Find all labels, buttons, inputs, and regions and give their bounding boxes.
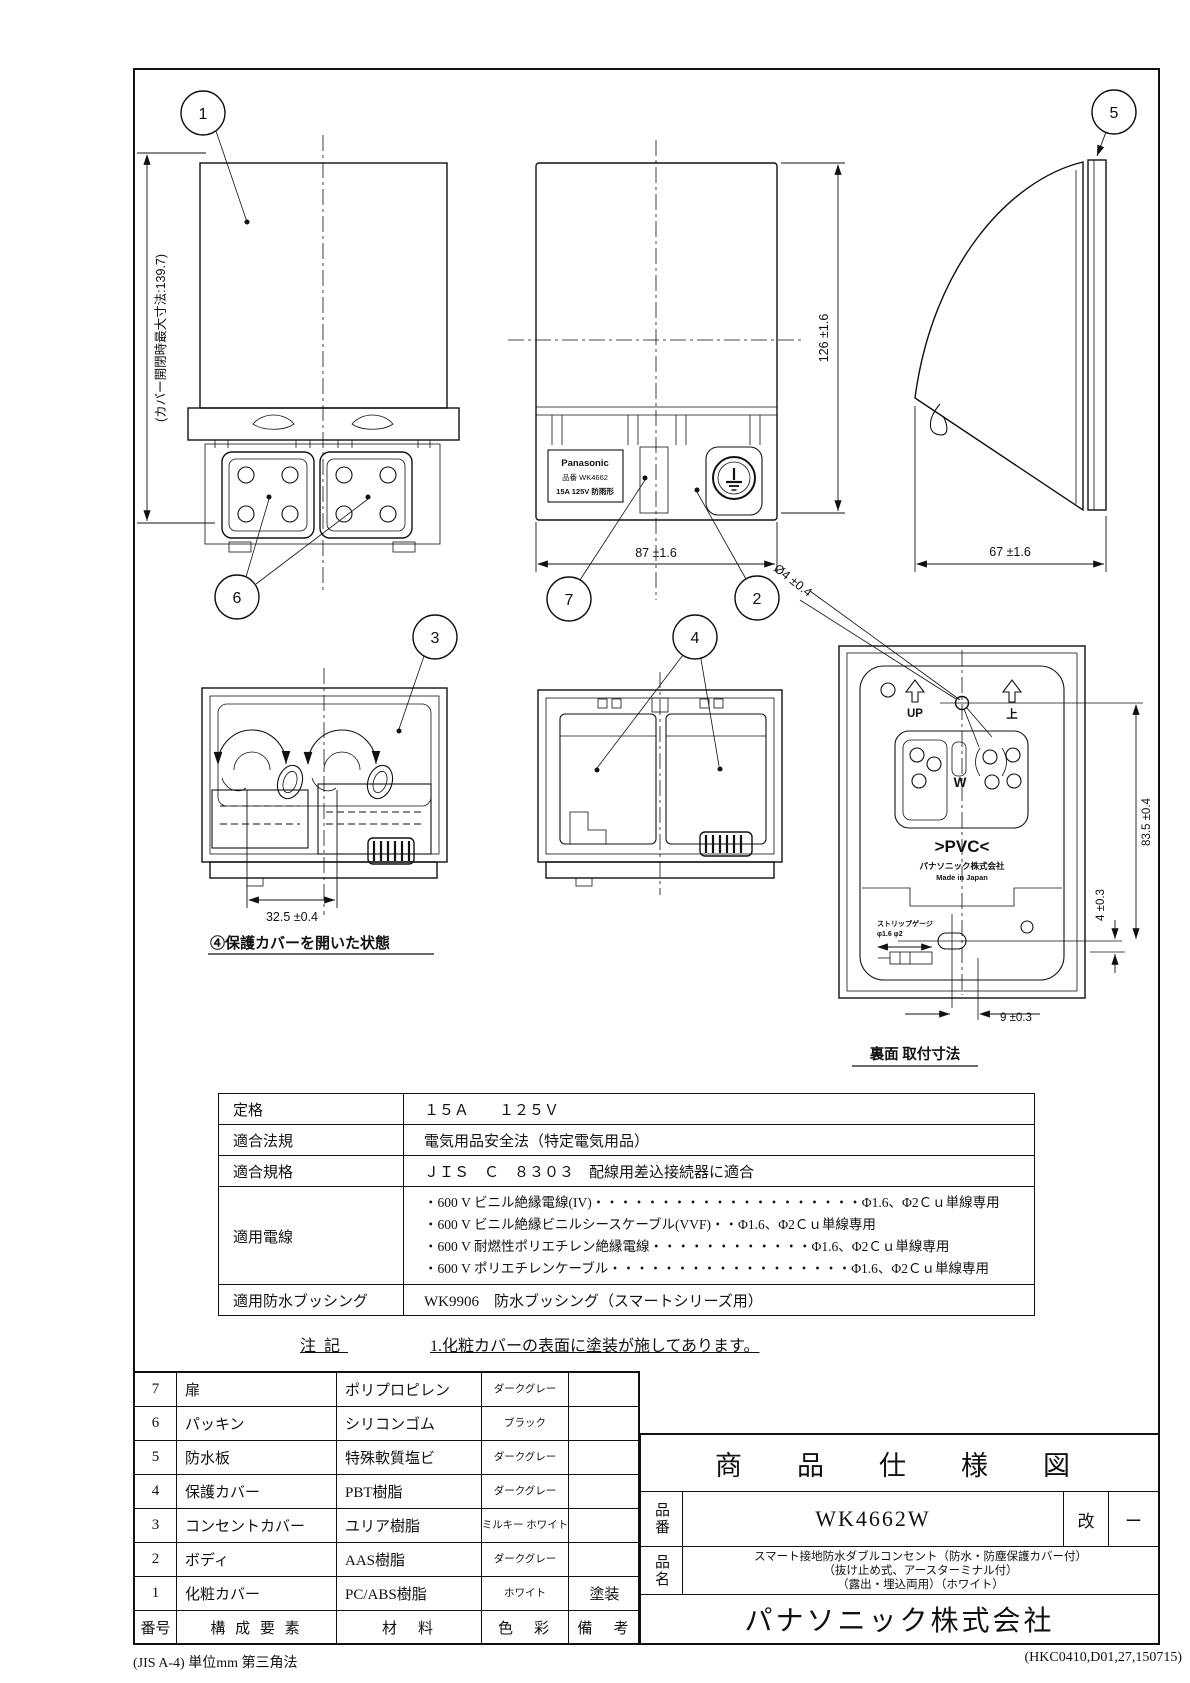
dim-offset-4: 4 ±0.3 [1095,889,1107,921]
rear-caption: 裏面 取付寸法 [869,1045,961,1063]
title-block: 商 品 仕 様 図 品番 WK4662W 改 ー 品名 スマート接地防水ダブルコ… [640,1433,1160,1645]
dim-height-126: 126 ±1.6 [817,314,831,363]
ground-terminal [706,447,762,515]
terminal-block: W [895,731,1028,828]
revision-label: 改 [1064,1492,1109,1546]
footer-format-note: (JIS A-4) 単位mm 第三角法 [133,1652,298,1672]
dim-width-87: 87 ±1.6 [635,546,677,560]
up-label: UP [907,708,923,720]
part-no-label: 品番 [641,1492,683,1546]
rear-view: Ø4 ±0.4 UP 上 [771,561,1153,1066]
spec-row-standard: 適合規格 ＪＩＳ Ｃ ８３０３ 配線用差込接続器に適合 [219,1156,1034,1187]
front-view-face: Panasonic 品番 WK4662 15A 125V 防雨形 126 [508,140,845,621]
svg-text:2: 2 [753,591,762,608]
side-view: 5 67 ±1.6 [915,90,1136,572]
svg-text:7: 7 [565,592,574,609]
cover-open-view: 3 [202,615,457,954]
origin-mark: Made in Japan [936,873,988,882]
maker-mark: パナソニック株式会社 [919,861,1005,871]
strip-gauge-title: ストリップゲージ [877,919,933,928]
company-name: パナソニック株式会社 [641,1595,1158,1643]
spec-row-bushing: 適用防水ブッシング WK9906 防水ブッシング（スマートシリーズ用） [219,1285,1034,1315]
svg-text:4: 4 [691,630,700,647]
product-name-label: 品名 [641,1547,683,1594]
dim-slot-9: 9 ±0.3 [1000,1012,1032,1024]
cover-hook [930,404,947,435]
cover-open-empty-view: 4 [538,615,782,895]
label-model: 品番 WK4662 [562,472,608,482]
note-label: 注記 [300,1338,348,1355]
up-kanji-arrow-icon [1003,680,1021,702]
product-name: スマート接地防水ダブルコンセント（防水・防塵保護カバー付） （抜け止め式、アース… [683,1547,1158,1594]
spec-row-law: 適合法規 電気用品安全法（特定電気用品） [219,1125,1034,1156]
note-line: 注記 1.化粧カバーの表面に塗装が施してあります。 [300,1332,759,1356]
strip-gauge-drawing [878,947,932,964]
cover-open-caption: ④保護カバーを開いた状態 [210,934,390,952]
dim-pitch-32-5: 32.5 ±0.4 [266,910,318,924]
dim-depth-67: 67 ±1.6 [989,545,1031,559]
product-label: Panasonic 品番 WK4662 15A 125V 防雨形 [548,450,623,502]
outlet-mechanism-left [218,730,307,802]
up-kanji: 上 [1006,707,1018,721]
spec-table: 定格 １５Ａ １２５Ｖ 適合法規 電気用品安全法（特定電気用品） 適合規格 ＪＩ… [218,1093,1035,1316]
spec-row-wires: 適用電線 ・600 V ビニル絶縁電線(IV)・・・・・・・・・・・・・・・・・… [219,1187,1034,1285]
ground-symbol-icon [726,468,742,490]
svg-text:1: 1 [199,106,208,123]
parts-table: 7 扉 ポリプロピレン ダークグレー 6 パッキン シリコンゴム ブラック 5 … [133,1371,640,1645]
dim-max-open-height: (カバー開閉時最大寸法:139.7) [154,254,168,422]
strip-gauge-value: φ1.6 φ2 [877,931,903,938]
label-rating: 15A 125V 防雨形 [556,486,614,496]
svg-text:6: 6 [233,590,242,607]
terminal-w-mark: W [954,775,967,790]
outlet-mechanism-right [308,730,397,802]
spec-row-rating: 定格 １５Ａ １２５Ｖ [219,1094,1034,1125]
spec-drawing-sheet: 1 (カバー開閉時最大寸法:139.7) [0,0,1190,1683]
label-brand: Panasonic [561,458,609,469]
dim-mount-835: 83.5 ±0.4 [1141,797,1153,845]
up-arrow-icon [906,680,924,702]
revision-value: ー [1109,1492,1158,1546]
pvc-mark: >PVC< [935,837,990,856]
front-view-closed: 1 (カバー開閉時最大寸法:139.7) [137,91,459,619]
footer-doc-code: (HKC0410,D01,27,150715) [1025,1650,1183,1666]
part-number: WK4662W [683,1492,1064,1546]
svg-text:3: 3 [431,630,440,647]
note-text: 1.化粧カバーの表面に塗装が施してあります。 [430,1338,759,1355]
sheet-title: 商 品 仕 様 図 [641,1435,1158,1492]
cable-bushing [368,838,414,864]
dim-hole-dia: Ø4 ±0.4 [771,561,815,599]
svg-text:5: 5 [1110,105,1119,122]
